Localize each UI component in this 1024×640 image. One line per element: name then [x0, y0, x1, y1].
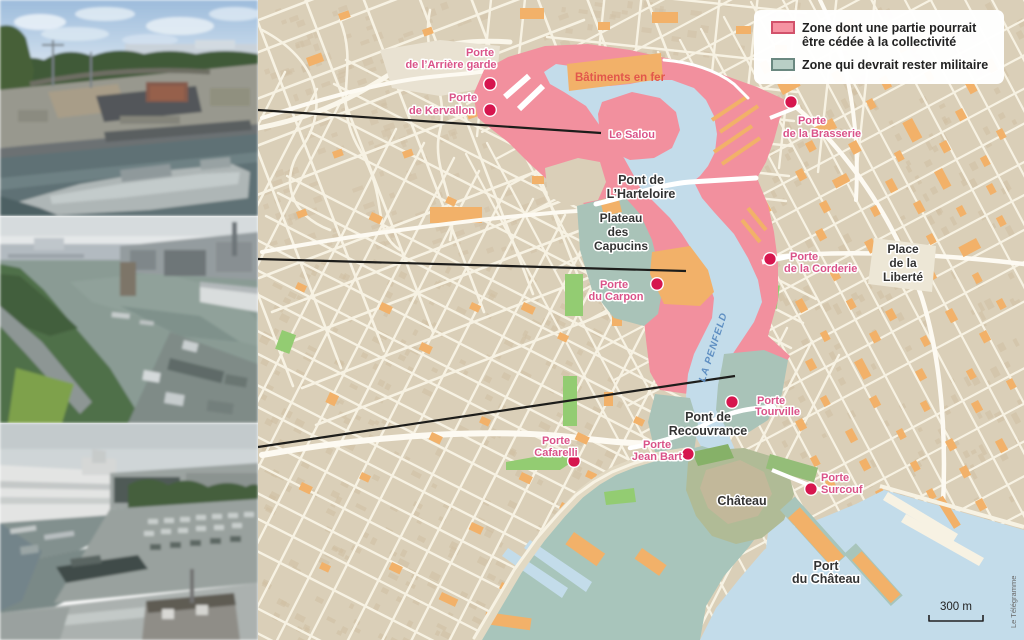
svg-text:L’Harteloire: L’Harteloire	[607, 187, 676, 201]
svg-text:de la: de la	[889, 256, 917, 270]
svg-text:Porte: Porte	[542, 435, 570, 447]
svg-text:des: des	[608, 225, 629, 239]
svg-text:Porte: Porte	[449, 92, 477, 104]
svg-text:Port: Port	[814, 559, 840, 573]
svg-text:de Kervallon: de Kervallon	[409, 105, 475, 117]
svg-text:Porte: Porte	[600, 279, 628, 291]
svg-text:Zone qui devrait rester milita: Zone qui devrait rester militaire	[802, 58, 988, 72]
svg-text:Plateau: Plateau	[600, 211, 643, 225]
svg-text:Recouvrance: Recouvrance	[669, 424, 748, 438]
svg-text:Château: Château	[717, 494, 766, 508]
svg-text:être cédée à la collectivité: être cédée à la collectivité	[802, 35, 956, 49]
svg-text:Cafarelli: Cafarelli	[534, 447, 577, 459]
svg-text:Liberté: Liberté	[883, 270, 923, 284]
svg-text:Tourville: Tourville	[755, 406, 800, 418]
svg-text:Zone dont une partie pourrait: Zone dont une partie pourrait	[802, 21, 977, 35]
svg-text:Porte: Porte	[643, 439, 671, 451]
svg-text:Surcouf: Surcouf	[821, 484, 863, 496]
svg-text:Porte: Porte	[798, 115, 826, 127]
svg-text:de la Brasserie: de la Brasserie	[783, 128, 861, 140]
svg-text:du Château: du Château	[792, 572, 860, 586]
svg-text:Jean Bart: Jean Bart	[632, 451, 682, 463]
svg-text:du Carpon: du Carpon	[589, 291, 644, 303]
svg-text:Le Télégramme: Le Télégramme	[1009, 576, 1018, 628]
svg-text:Pont de: Pont de	[685, 410, 731, 424]
svg-text:de la Corderie: de la Corderie	[784, 263, 857, 275]
svg-text:Capucins: Capucins	[594, 239, 648, 253]
svg-text:Bâtiments en fer: Bâtiments en fer	[575, 72, 666, 84]
svg-text:Porte: Porte	[790, 251, 818, 263]
svg-text:Place: Place	[887, 242, 919, 256]
svg-text:Porte: Porte	[466, 47, 494, 59]
svg-text:Le Salou: Le Salou	[609, 129, 655, 141]
svg-text:Pont de: Pont de	[618, 173, 664, 187]
svg-text:Porte: Porte	[821, 472, 849, 484]
svg-text:300 m: 300 m	[940, 601, 972, 613]
svg-text:de l’Arrière garde: de l’Arrière garde	[405, 59, 496, 71]
